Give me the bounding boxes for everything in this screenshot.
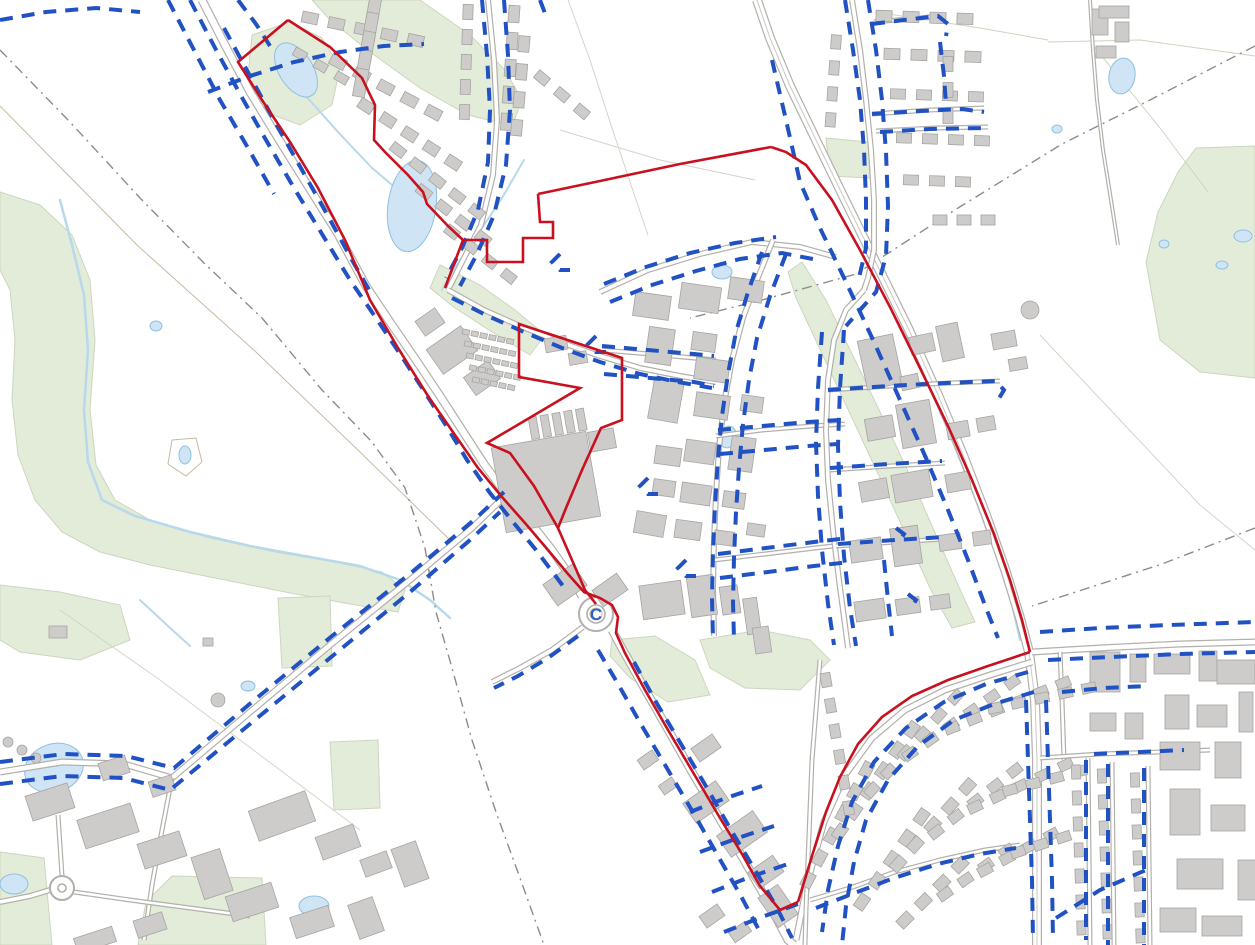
building — [1073, 817, 1082, 831]
building — [491, 431, 600, 532]
pond — [241, 681, 255, 691]
building — [896, 133, 911, 144]
building — [654, 445, 682, 466]
greenspace-area — [278, 596, 332, 668]
map-canvas[interactable]: C — [0, 0, 1255, 945]
building — [1130, 773, 1139, 787]
building — [933, 215, 947, 225]
building — [460, 79, 471, 94]
building — [895, 399, 936, 448]
building — [876, 10, 892, 22]
building — [1075, 869, 1084, 883]
building — [911, 49, 927, 61]
building — [459, 104, 470, 119]
building — [722, 491, 746, 510]
building — [464, 341, 472, 347]
pond — [179, 446, 191, 464]
building — [889, 525, 922, 567]
building — [674, 519, 702, 540]
building — [864, 415, 895, 442]
building — [825, 112, 836, 127]
building — [1217, 660, 1255, 684]
building — [1170, 789, 1200, 835]
pond — [1159, 240, 1169, 248]
building — [957, 13, 973, 25]
building — [1199, 651, 1217, 681]
building — [508, 350, 516, 356]
building — [820, 672, 832, 688]
building — [678, 282, 721, 313]
building — [1071, 765, 1080, 779]
map-viewport[interactable]: C — [0, 0, 1255, 945]
building — [472, 377, 480, 383]
building — [691, 331, 717, 352]
building — [752, 626, 771, 654]
building — [639, 580, 685, 620]
building — [680, 482, 712, 506]
building — [1099, 6, 1129, 18]
building — [1130, 654, 1146, 682]
building — [922, 134, 937, 145]
building — [1197, 705, 1227, 727]
building — [827, 87, 838, 102]
building — [633, 511, 666, 538]
building — [1131, 799, 1140, 813]
building — [957, 215, 971, 225]
pond — [150, 321, 162, 331]
building — [824, 698, 836, 714]
building — [492, 358, 500, 364]
building — [1074, 843, 1083, 857]
tank-building — [1021, 301, 1039, 319]
building — [916, 90, 931, 101]
building — [495, 370, 503, 376]
building — [645, 326, 676, 365]
building — [1154, 654, 1190, 674]
building — [854, 598, 886, 622]
building — [480, 333, 488, 339]
pond — [1216, 261, 1228, 269]
building — [1202, 916, 1242, 936]
building — [719, 585, 741, 615]
building — [974, 135, 989, 146]
building — [1134, 877, 1143, 891]
building — [462, 329, 470, 335]
building — [965, 51, 981, 63]
building — [829, 61, 840, 76]
building — [1096, 46, 1116, 58]
building — [948, 135, 963, 146]
building — [1160, 742, 1200, 770]
building — [903, 175, 918, 186]
building — [858, 478, 889, 503]
building — [884, 48, 900, 60]
building — [507, 384, 515, 390]
building — [1211, 805, 1245, 831]
building — [511, 119, 523, 136]
building — [510, 362, 518, 368]
pond — [1234, 230, 1252, 242]
building — [1115, 22, 1129, 42]
building — [968, 91, 983, 102]
building — [1177, 859, 1223, 889]
building — [1239, 692, 1253, 732]
building — [945, 471, 972, 493]
building — [49, 626, 67, 638]
building — [203, 638, 213, 646]
building — [976, 416, 996, 433]
building — [518, 36, 530, 53]
building — [1238, 860, 1255, 900]
building — [1072, 791, 1081, 805]
building — [490, 381, 498, 387]
building — [891, 469, 933, 503]
building — [981, 215, 995, 225]
building — [831, 35, 842, 50]
pond — [0, 874, 28, 894]
building — [498, 382, 506, 388]
tank-building — [17, 745, 27, 755]
building — [463, 4, 474, 19]
building — [713, 530, 735, 547]
building — [506, 338, 514, 344]
building — [515, 63, 527, 80]
building — [1008, 357, 1028, 372]
building — [484, 357, 492, 363]
building — [1097, 769, 1106, 783]
building — [513, 91, 525, 108]
building — [466, 353, 474, 359]
building — [508, 5, 520, 23]
building — [471, 331, 479, 337]
building — [684, 439, 717, 465]
building — [746, 523, 765, 537]
building — [475, 355, 483, 361]
roundabout-island — [58, 884, 66, 892]
building — [972, 530, 992, 546]
building — [501, 360, 509, 366]
building — [499, 348, 507, 354]
building — [694, 357, 731, 384]
building — [461, 54, 472, 69]
building — [890, 89, 905, 100]
building — [504, 372, 512, 378]
building — [1132, 825, 1141, 839]
building — [1090, 713, 1116, 731]
building — [497, 336, 505, 342]
building — [469, 365, 477, 371]
tank-building — [3, 737, 13, 747]
building — [1165, 695, 1189, 729]
building — [633, 292, 672, 321]
building — [829, 723, 841, 739]
building — [481, 379, 489, 385]
tank-building — [211, 693, 225, 707]
building — [487, 369, 495, 375]
building — [488, 334, 496, 340]
pond — [1052, 125, 1062, 133]
building — [482, 345, 490, 351]
building — [929, 176, 944, 187]
roundabout-label: C — [590, 605, 602, 624]
building — [833, 749, 845, 765]
building — [929, 594, 951, 611]
building — [1125, 713, 1143, 739]
map-background — [0, 0, 1255, 945]
greenspace-area — [330, 740, 380, 810]
building — [490, 346, 498, 352]
building — [462, 29, 473, 44]
building — [1215, 742, 1241, 778]
building — [473, 343, 481, 349]
building — [955, 177, 970, 188]
building — [1160, 908, 1196, 932]
building — [1133, 851, 1142, 865]
building — [478, 367, 486, 373]
